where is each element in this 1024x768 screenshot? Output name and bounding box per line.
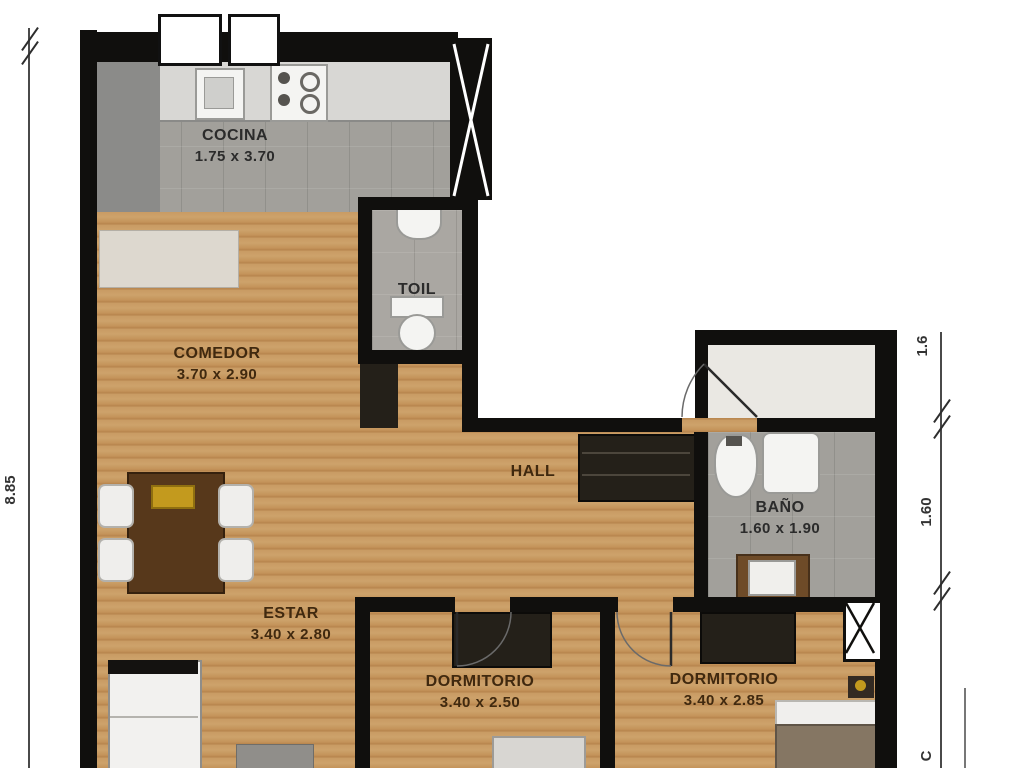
room-name: COCINA — [135, 126, 335, 147]
burner — [300, 94, 320, 114]
wardrobe-seam — [582, 474, 690, 476]
vanity-basin — [748, 560, 796, 596]
wall-bath-top-left — [462, 418, 682, 432]
hall-wardrobe-icon — [578, 434, 698, 502]
wall-entry-left — [695, 330, 708, 418]
wall-toil-bottom — [358, 350, 478, 364]
exterior-area — [478, 198, 695, 418]
room-label-dormitorio2: DORMITORIO 3.40 x 2.85 — [624, 670, 824, 710]
elevator-shaft-icon — [450, 38, 492, 200]
sideboard-counter — [99, 230, 239, 288]
gold-tray-icon — [151, 485, 195, 509]
room-dims: 1.60 x 1.90 — [690, 519, 870, 539]
chair-icon — [98, 538, 134, 582]
cabinet-top-band — [108, 660, 198, 674]
room-label-toil: TOIL — [357, 280, 477, 301]
window-icon — [158, 14, 222, 66]
room-name: DORMITORIO — [624, 670, 824, 691]
burner — [278, 72, 290, 84]
wall-dorm-divider — [600, 612, 615, 768]
room-label-cocina: COCINA 1.75 x 3.70 — [135, 126, 335, 166]
bedroom1-wardrobe-icon — [452, 612, 552, 668]
cabinet-seam — [110, 716, 198, 718]
wall-bedrooms-2 — [510, 597, 618, 612]
exterior-area — [492, 0, 1024, 198]
room-label-comedor: COMEDOR 3.70 x 2.90 — [117, 344, 317, 384]
room-label-estar: ESTAR 3.40 x 2.80 — [191, 604, 391, 644]
stove-icon — [270, 64, 328, 122]
storage-cabinet — [360, 364, 398, 428]
bedroom2-bed-icon — [775, 724, 879, 768]
room-name: COMEDOR — [117, 344, 317, 365]
chair-icon — [218, 484, 254, 528]
room-name: HALL — [473, 462, 593, 483]
room-label-bano: BAÑO 1.60 x 1.90 — [690, 498, 870, 538]
dimension-text-right-middle: 1.60 — [918, 480, 938, 544]
burner — [278, 94, 290, 106]
dimension-text-left: 8.85 — [2, 458, 22, 522]
room-label-dormitorio1: DORMITORIO 3.40 x 2.50 — [380, 672, 580, 712]
room-name: DORMITORIO — [380, 672, 580, 693]
bathroom-toilet-icon — [762, 432, 820, 494]
exterior-area — [695, 198, 1024, 330]
room-dims: 1.75 x 3.70 — [135, 147, 335, 167]
wall-right-outer — [875, 330, 897, 768]
entry-floor — [708, 345, 875, 418]
room-name: TOIL — [357, 280, 477, 301]
dimension-tick — [21, 27, 39, 51]
bedroom1-bed-icon — [492, 736, 586, 768]
wall-bath-top-right — [757, 418, 875, 432]
room-label-hall: HALL — [473, 462, 593, 483]
white-cabinet-icon — [108, 660, 202, 768]
room-dims: 3.40 x 2.50 — [380, 693, 580, 713]
window-icon — [228, 14, 280, 66]
chair-icon — [218, 538, 254, 582]
floor-plan: COCINA 1.75 x 3.70 TOIL COMEDOR 3.70 x 2… — [0, 0, 1024, 768]
wall-left — [80, 30, 97, 768]
air-duct-icon — [843, 600, 883, 662]
room-dims: 3.40 x 2.80 — [191, 625, 391, 645]
night-lamp-icon — [855, 680, 866, 691]
room-dims: 3.70 x 2.90 — [117, 365, 317, 385]
room-name: ESTAR — [191, 604, 391, 625]
bidet-faucet — [726, 436, 742, 446]
wardrobe-seam — [582, 452, 690, 454]
dimension-text-right-top: 1.6 — [914, 314, 934, 378]
room-dims: 3.40 x 2.85 — [624, 691, 824, 711]
wall-toil-right — [462, 197, 478, 430]
room-name: BAÑO — [690, 498, 870, 519]
dimension-line-right-outer — [964, 688, 966, 768]
burner — [300, 72, 320, 92]
wall-entry-top — [695, 330, 875, 345]
dimension-line-left — [28, 28, 30, 768]
toilet-bowl — [398, 314, 436, 352]
pouf-icon — [236, 744, 314, 768]
kitchen-sink-basin — [204, 77, 234, 109]
chair-icon — [98, 484, 134, 528]
dimension-text-right-bottom: C — [918, 740, 938, 768]
dimension-line-right — [940, 332, 942, 768]
bedroom2-wardrobe-icon — [700, 612, 796, 664]
